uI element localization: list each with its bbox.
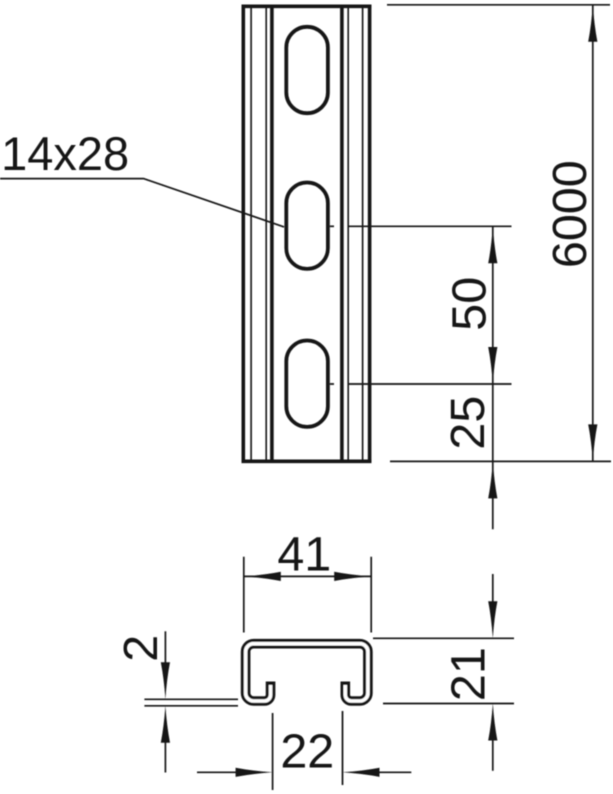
svg-text:6000: 6000	[543, 160, 597, 268]
svg-text:25: 25	[441, 396, 495, 450]
svg-text:2: 2	[114, 635, 168, 662]
svg-text:41: 41	[277, 527, 331, 581]
svg-text:21: 21	[441, 647, 495, 701]
svg-text:14x28: 14x28	[1, 127, 129, 180]
svg-text:50: 50	[442, 277, 496, 331]
svg-text:22: 22	[280, 725, 334, 779]
